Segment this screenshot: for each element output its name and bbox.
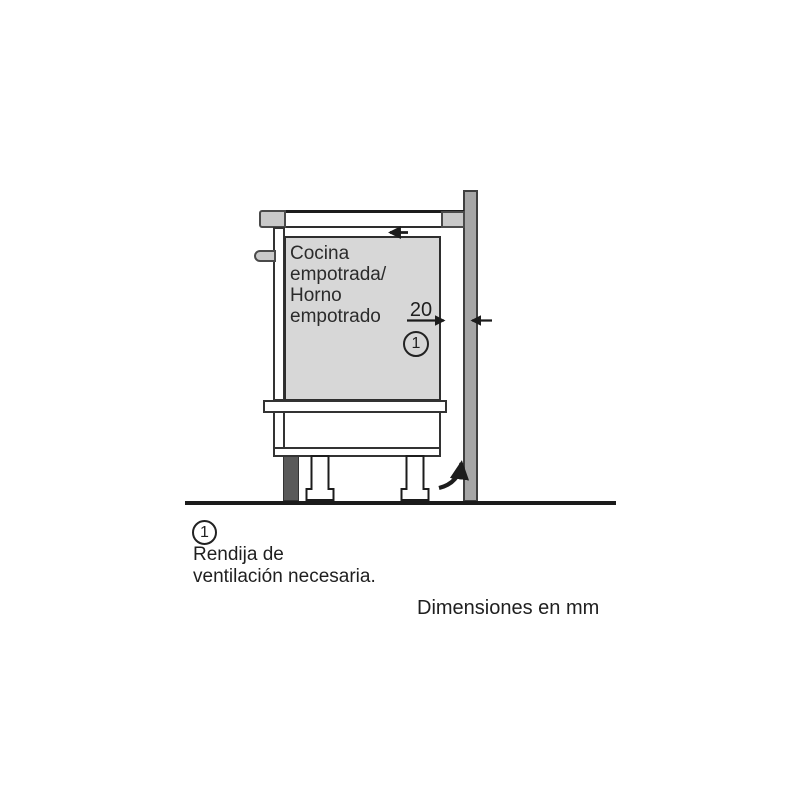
base-cabinet-frame-line	[283, 412, 285, 448]
oven-handle-knob	[254, 250, 276, 262]
oven-leg-front	[307, 456, 334, 500]
wall-panel	[463, 190, 478, 502]
callout-1-badge: 1	[403, 331, 429, 357]
gap-dimension-label: 20	[405, 299, 437, 322]
legend-text: Rendija de ventilación necesaria.	[193, 544, 423, 587]
base-cabinet-divider	[274, 447, 440, 449]
hob-trim-left	[259, 210, 286, 228]
airflow-up-arrow-icon	[439, 463, 462, 488]
units-note: Dimensiones en mm	[417, 597, 647, 620]
hob-trim-right	[441, 211, 465, 228]
countertop	[262, 210, 464, 228]
base-cabinet	[273, 411, 441, 457]
floor-line	[185, 501, 616, 505]
oven-leg-rear	[402, 456, 429, 500]
installation-diagram: Cocina empotrada/ Horno empotrado 20 1 1…	[0, 0, 800, 800]
legend-1-badge: 1	[192, 520, 217, 545]
plinth-panel	[283, 456, 299, 501]
